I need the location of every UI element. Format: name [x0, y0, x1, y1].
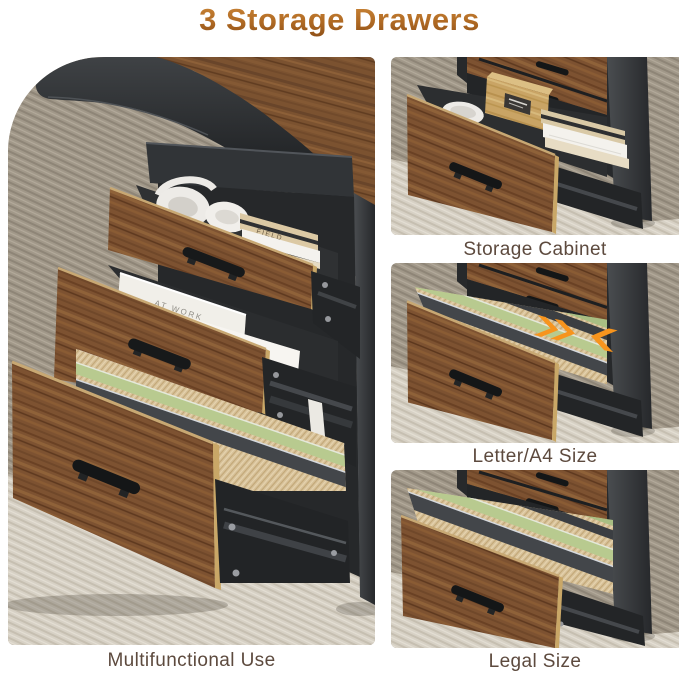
product-collage: 3 Storage Drawers — [0, 0, 679, 679]
photo-letter-a4-size — [391, 263, 679, 443]
page-title: 3 Storage Drawers — [0, 1, 679, 39]
caption-letter-a4-size: Letter/A4 Size — [391, 444, 679, 470]
open-drawer-with-items-photo — [391, 57, 679, 235]
file-drawer-legal-photo — [391, 470, 679, 648]
photo-storage-cabinet — [391, 57, 679, 235]
file-drawer-letter-a4-photo — [391, 263, 679, 443]
caption-legal-size: Legal Size — [391, 649, 679, 675]
photo-legal-size — [391, 470, 679, 648]
caption-multifunctional-use: Multifunctional Use — [8, 648, 375, 674]
photo-multifunctional-use: FIELD AT WORK — [8, 57, 375, 645]
desk-cabinet-open-drawers-photo: FIELD AT WORK — [8, 57, 375, 645]
caption-storage-cabinet: Storage Cabinet — [391, 237, 679, 263]
